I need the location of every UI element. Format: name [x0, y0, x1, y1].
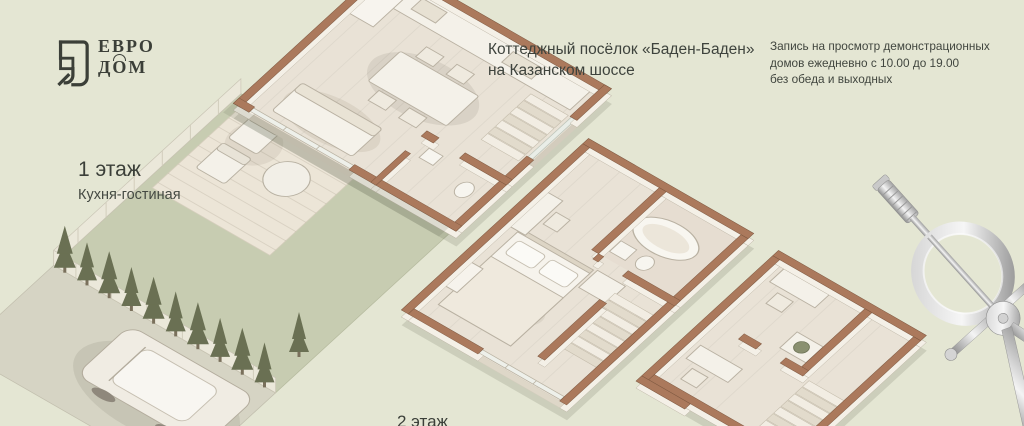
- logo-line2: ДОМ: [98, 57, 147, 78]
- logo: ЕВРО ДОМ: [52, 36, 155, 88]
- page: ЕВРО ДОМ Коттеджный посёлок «Баден-Баден…: [0, 0, 1024, 426]
- note-line2: домов ежедневно с 10.00 до 19.00: [770, 55, 990, 72]
- floor1-label: 1 этаж: [78, 158, 141, 182]
- logo-wordmark: ЕВРО ДОМ: [98, 36, 155, 78]
- floor1-sublabel: Кухня-гостиная: [78, 187, 181, 203]
- note-line3: без обеда и выходных: [770, 71, 990, 88]
- visit-note: Запись на просмотр демонстрационных домо…: [770, 38, 990, 88]
- note-line1: Запись на просмотр демонстрационных: [770, 38, 990, 55]
- page-title: Коттеджный посёлок «Баден-Баден» на Каза…: [488, 39, 754, 81]
- eurodom-monogram-icon: [52, 36, 90, 88]
- title-line1: Коттеджный посёлок «Баден-Баден»: [488, 39, 754, 60]
- title-line2: на Казанском шоссе: [488, 60, 754, 81]
- logo-line1: ЕВРО: [98, 36, 155, 57]
- floor2-label: 2 этаж: [397, 412, 448, 426]
